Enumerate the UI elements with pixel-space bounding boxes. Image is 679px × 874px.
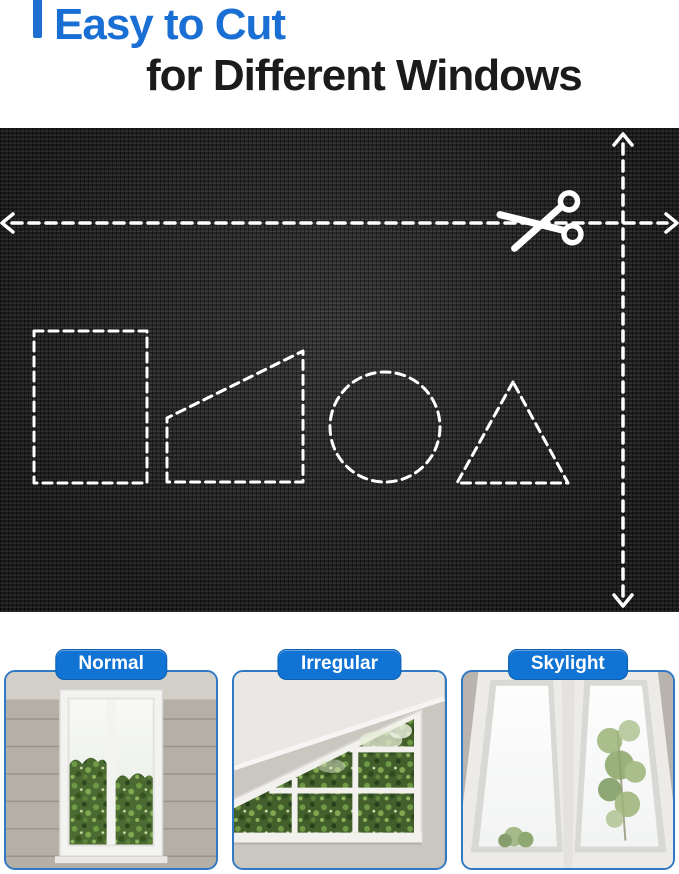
photo-normal-window xyxy=(4,670,218,870)
page-title-line1: Easy to Cut xyxy=(54,0,285,50)
product-infographic: Easy to Cut for Different Windows xyxy=(0,0,679,874)
card-irregular: Irregular xyxy=(232,670,446,870)
card-skylight: Skylight xyxy=(461,670,675,870)
cut-shape-rectangle xyxy=(34,331,147,483)
cut-shape-circle xyxy=(330,372,440,482)
cut-shape-triangle xyxy=(457,382,568,483)
photo-skylight-window xyxy=(461,670,675,870)
skylight-window-illustration xyxy=(463,672,673,868)
cut-shape-trapezoid xyxy=(167,351,303,482)
fabric-swatch xyxy=(0,128,679,612)
photo-irregular-window xyxy=(232,670,446,870)
normal-window-illustration xyxy=(6,672,216,868)
card-normal: Normal xyxy=(4,670,218,870)
title-accent-bar xyxy=(33,0,42,38)
vertical-cut-line xyxy=(614,134,632,606)
page-title-line2: for Different Windows xyxy=(146,51,582,101)
badge-normal: Normal xyxy=(55,649,166,680)
cut-guides-overlay xyxy=(0,128,679,612)
irregular-window-illustration xyxy=(234,672,444,868)
scissors-icon xyxy=(498,192,581,250)
badge-irregular: Irregular xyxy=(278,649,401,680)
window-type-cards: Normal xyxy=(4,670,675,870)
badge-skylight: Skylight xyxy=(508,649,628,680)
